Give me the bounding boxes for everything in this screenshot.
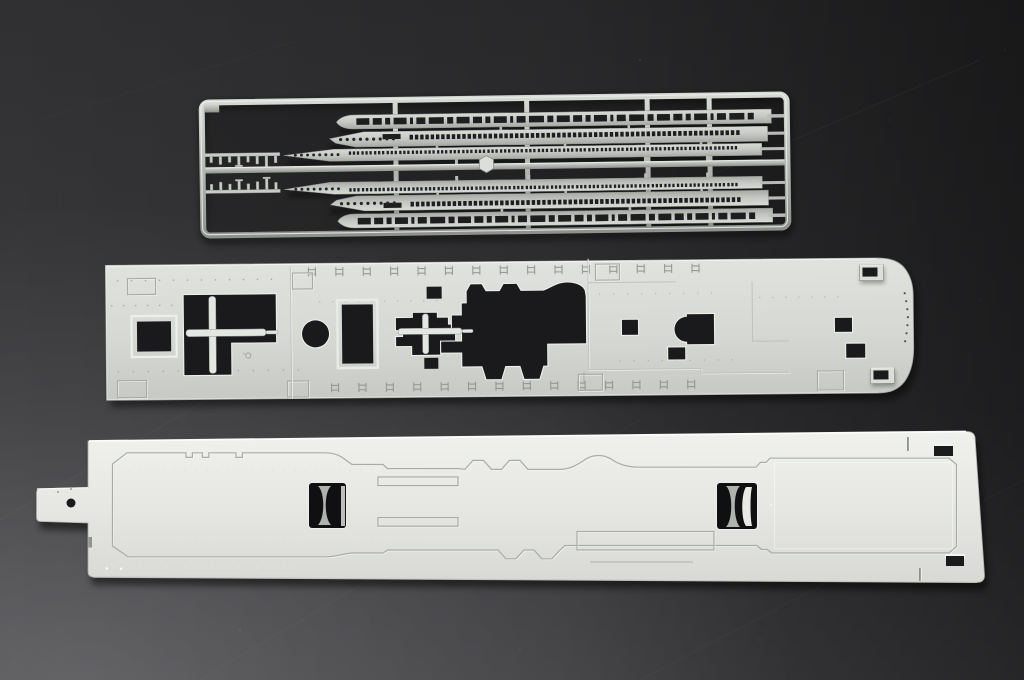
rod-pin-left [266,331,278,335]
tab-rivet [57,491,59,493]
margin-rivet1 [106,567,108,569]
rod-horizontal-left [186,329,266,337]
photo-model-kit-parts [0,0,1024,680]
tab-hole [67,499,76,508]
small-plate-part [479,156,493,173]
opening-circle [302,320,329,347]
rod-horizontal-right [398,328,462,335]
deck-dot [770,504,772,506]
opening-coaming-rect [337,300,378,368]
opening-square-left [131,316,176,357]
tab-rivet2 [70,488,72,490]
slot-bottom-right [946,556,964,566]
well-rim-forward [341,486,345,526]
sprue-superstructure-walls [201,94,790,241]
deck-panel-upper [105,255,918,407]
opening-keyhole [674,314,714,344]
deck-panel-lower [37,431,988,590]
slot-top-right [934,446,953,456]
rod-pin-right [462,329,473,332]
sprue-corner-tab [204,104,219,113]
wide-window [383,134,401,139]
photo-canvas [0,0,1024,680]
margin-rivet2 [120,568,122,570]
edge-slot-left [89,537,93,548]
